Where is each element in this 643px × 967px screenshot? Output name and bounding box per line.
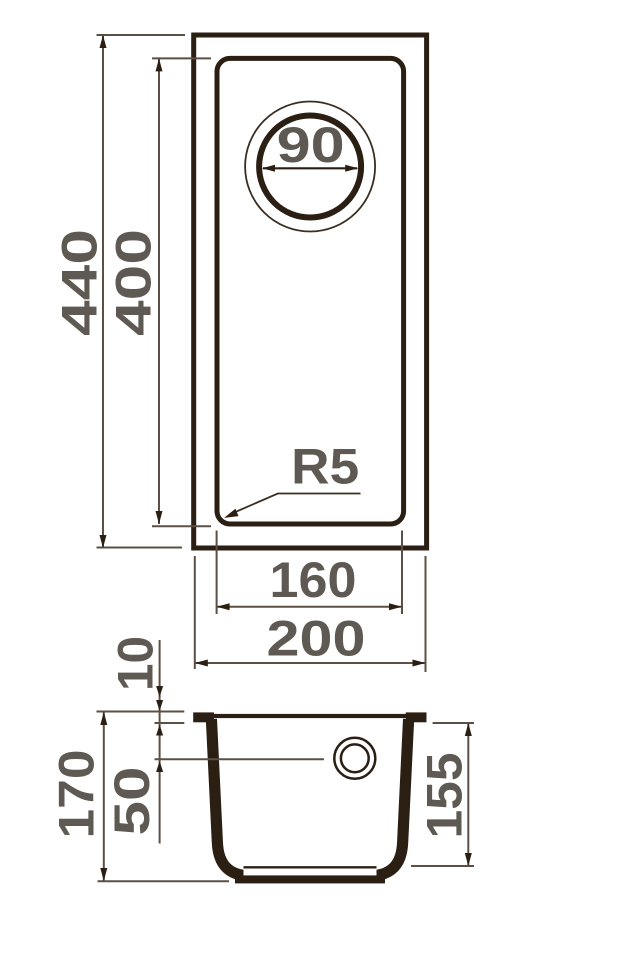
svg-text:200: 200	[267, 611, 366, 667]
svg-text:10: 10	[108, 636, 164, 691]
svg-text:170: 170	[48, 750, 104, 839]
svg-text:155: 155	[417, 753, 473, 839]
svg-text:400: 400	[105, 229, 161, 336]
svg-text:90: 90	[277, 117, 345, 173]
svg-text:R5: R5	[291, 439, 359, 495]
svg-text:50: 50	[104, 767, 160, 836]
svg-text:440: 440	[51, 229, 107, 336]
svg-text:160: 160	[270, 552, 357, 608]
